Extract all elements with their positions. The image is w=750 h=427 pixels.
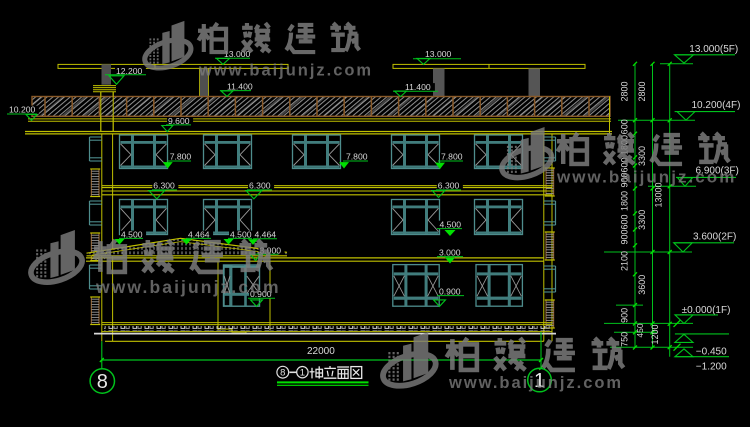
svg-text:8: 8 bbox=[280, 368, 285, 379]
svg-text:0.900: 0.900 bbox=[439, 286, 461, 296]
svg-text:4.500: 4.500 bbox=[121, 229, 143, 239]
svg-text:450: 450 bbox=[635, 323, 645, 337]
svg-text:13.000(5F): 13.000(5F) bbox=[689, 44, 738, 55]
svg-text:600: 600 bbox=[619, 214, 629, 229]
svg-text:900: 900 bbox=[619, 308, 629, 323]
svg-text:4.464: 4.464 bbox=[188, 229, 210, 239]
svg-text:900: 900 bbox=[619, 229, 629, 244]
svg-text:600: 600 bbox=[619, 119, 629, 134]
svg-text:6.300: 6.300 bbox=[438, 180, 460, 190]
svg-text:3600: 3600 bbox=[637, 275, 647, 295]
svg-text:−1.200: −1.200 bbox=[696, 362, 727, 373]
svg-text:−0.450: −0.450 bbox=[696, 347, 727, 358]
svg-text:6.300: 6.300 bbox=[249, 180, 271, 190]
svg-text:2800: 2800 bbox=[637, 81, 647, 101]
svg-text:4.500: 4.500 bbox=[440, 219, 462, 229]
svg-text:13.000: 13.000 bbox=[425, 49, 452, 59]
svg-text:11.400: 11.400 bbox=[227, 81, 253, 91]
svg-text:1200: 1200 bbox=[650, 324, 660, 344]
svg-text:1: 1 bbox=[300, 368, 305, 379]
svg-text:10.200(4F): 10.200(4F) bbox=[692, 100, 741, 111]
svg-text:3300: 3300 bbox=[637, 210, 647, 230]
svg-text:6.300: 6.300 bbox=[153, 180, 175, 190]
svg-text:1800: 1800 bbox=[619, 191, 629, 211]
svg-text:www.baijunjz.com: www.baijunjz.com bbox=[448, 374, 623, 392]
svg-text:3.600(2F): 3.600(2F) bbox=[693, 231, 736, 242]
svg-text:www.baijunjz.com: www.baijunjz.com bbox=[198, 62, 373, 80]
svg-text:7.800: 7.800 bbox=[346, 152, 368, 162]
svg-text:750: 750 bbox=[619, 332, 629, 347]
svg-text:3300: 3300 bbox=[637, 146, 647, 166]
svg-text:10.200: 10.200 bbox=[9, 104, 36, 114]
svg-text:3.000: 3.000 bbox=[439, 247, 461, 257]
svg-text:7.800: 7.800 bbox=[441, 152, 463, 162]
svg-text:2800: 2800 bbox=[619, 81, 629, 101]
svg-text:11.400: 11.400 bbox=[405, 82, 431, 92]
svg-text:www.baijunjz.com: www.baijunjz.com bbox=[556, 168, 736, 187]
svg-text:22000: 22000 bbox=[307, 346, 335, 357]
svg-text:4.500: 4.500 bbox=[230, 229, 252, 239]
svg-text:7.800: 7.800 bbox=[170, 152, 192, 162]
svg-text:www.baijunjz.com: www.baijunjz.com bbox=[95, 277, 281, 297]
svg-text:4.464: 4.464 bbox=[255, 230, 277, 240]
svg-text:2100: 2100 bbox=[619, 251, 629, 271]
svg-text:8: 8 bbox=[97, 371, 108, 393]
